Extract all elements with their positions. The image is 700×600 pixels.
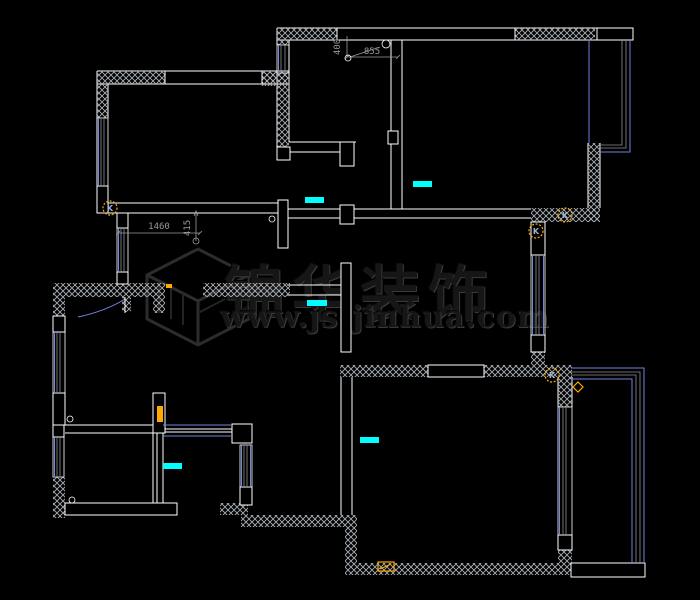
- switch-symbol-label: K: [549, 371, 556, 380]
- floor-plan-canvas: 1460 415 855 400 K: [0, 0, 700, 600]
- room-label-marker: [413, 181, 432, 187]
- switch-symbol-label: K: [533, 227, 540, 236]
- room-label-marker: [360, 437, 379, 443]
- door-swing-arc: [78, 297, 125, 317]
- switch-symbol-label: K: [562, 211, 569, 220]
- door-leaf-symbol: [157, 406, 163, 422]
- room-label-marker: [163, 463, 182, 469]
- room-label-marker: [305, 197, 324, 203]
- dim-400-label: 400: [333, 39, 343, 55]
- dim-1460-label: 1460: [148, 222, 170, 232]
- reference-circle: [67, 416, 73, 422]
- dim-855-label: 855: [364, 47, 380, 57]
- wall-openings: [53, 28, 645, 577]
- bay-windows: [571, 40, 644, 563]
- dim-415-label: 415: [183, 220, 193, 236]
- switch-symbol-label: K: [107, 204, 114, 213]
- reference-circle: [269, 216, 275, 222]
- cad-viewport: 锦华装饰 www.js-jinhua.com: [0, 0, 700, 600]
- reference-circle: [69, 497, 75, 503]
- reference-circle: [382, 40, 390, 48]
- room-label-markers: [163, 181, 432, 469]
- diamond-symbol: [573, 382, 583, 392]
- small-symbol: [166, 284, 172, 288]
- room-label-marker: [307, 300, 327, 306]
